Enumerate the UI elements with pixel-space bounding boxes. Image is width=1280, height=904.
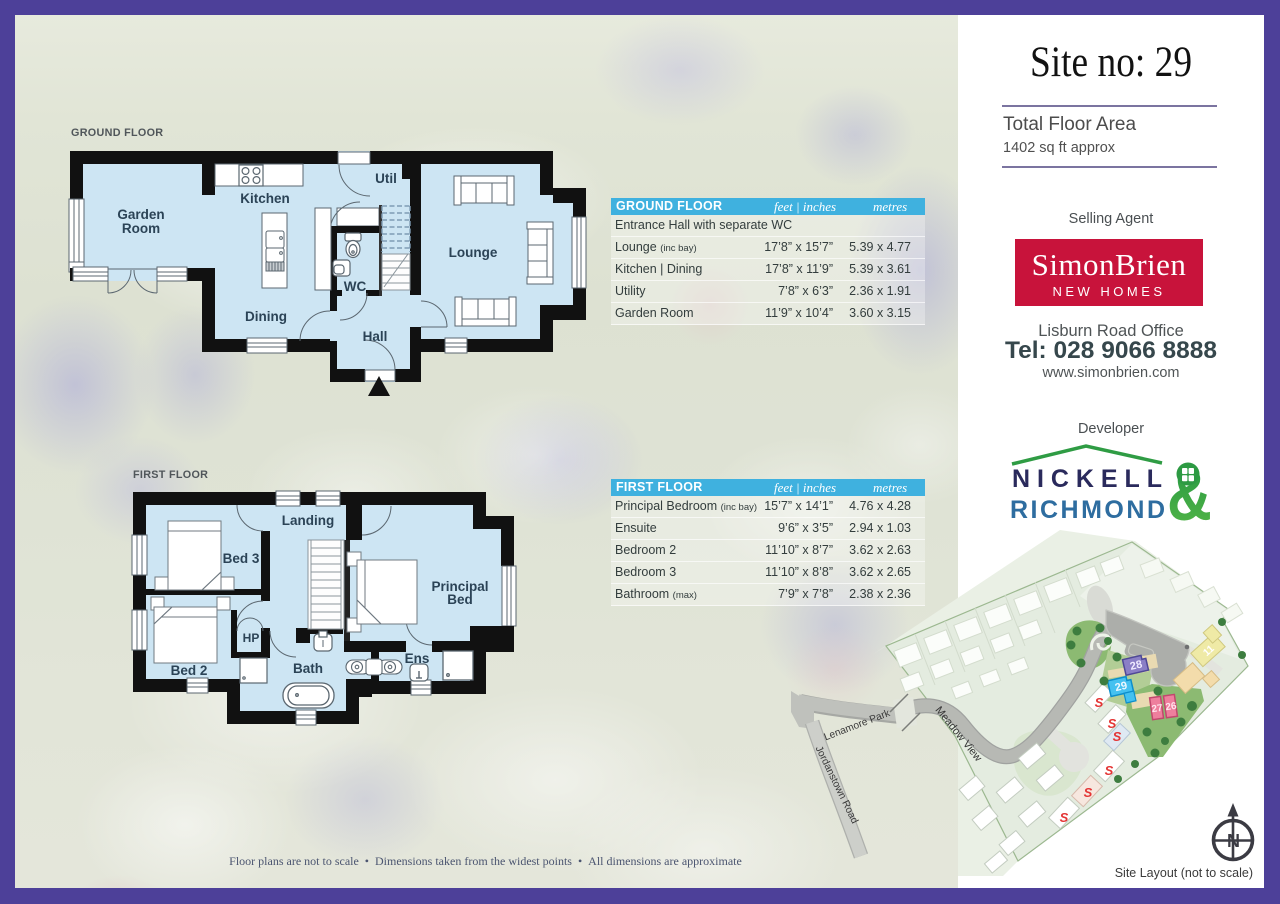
svg-text:S: S [1095,695,1104,710]
svg-text:Hall: Hall [363,329,388,344]
svg-text:Bed: Bed [447,592,473,607]
svg-text:Garden: Garden [117,207,164,222]
svg-text:Util: Util [375,171,397,186]
svg-text:Kitchen: Kitchen [240,191,290,206]
svg-text:Jordanstown Road: Jordanstown Road [813,744,860,825]
svg-text:Bath: Bath [293,661,323,676]
svg-text:GROUND FLOOR: GROUND FLOOR [71,127,163,139]
svg-text:Dining: Dining [245,309,287,324]
svg-text:FIRST FLOOR: FIRST FLOOR [133,469,208,481]
svg-text:Bed 2: Bed 2 [171,663,208,678]
svg-text:Ens: Ens [405,651,430,666]
svg-text:S: S [1113,729,1122,744]
svg-text:S: S [1084,785,1093,800]
svg-text:N: N [1227,831,1240,851]
svg-text:RICHMOND: RICHMOND [1010,496,1165,524]
svg-text:Room: Room [122,221,160,236]
svg-text:27: 27 [1151,703,1164,716]
svg-text:WC: WC [344,279,367,294]
svg-text:Lounge: Lounge [449,245,498,260]
svg-text:S: S [1060,810,1069,825]
svg-text:HP: HP [243,631,260,645]
svg-text:S: S [1105,763,1114,778]
svg-text:Bed 3: Bed 3 [223,551,260,566]
svg-text:Landing: Landing [282,513,335,528]
svg-text:26: 26 [1165,701,1178,714]
svg-text:NICKELL: NICKELL [1012,465,1162,493]
